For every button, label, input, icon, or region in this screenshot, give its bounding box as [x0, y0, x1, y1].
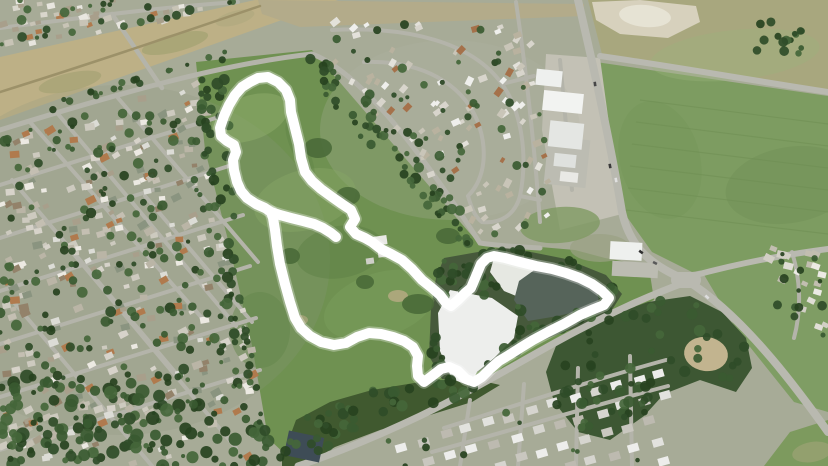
- tree: [423, 136, 428, 141]
- house: [70, 137, 79, 144]
- tree: [456, 158, 461, 163]
- house: [5, 188, 15, 195]
- tree: [9, 290, 14, 295]
- tree: [86, 345, 92, 351]
- tree: [512, 161, 521, 170]
- tree: [185, 427, 197, 439]
- tree: [15, 164, 22, 171]
- tree: [229, 292, 235, 298]
- tree: [243, 369, 252, 378]
- tree: [330, 69, 336, 75]
- tree: [198, 91, 204, 97]
- tree: [28, 128, 32, 132]
- tree: [578, 424, 586, 432]
- tree: [362, 122, 369, 129]
- tree: [77, 345, 84, 352]
- tree: [28, 447, 34, 453]
- tree: [9, 382, 21, 394]
- tree: [628, 381, 634, 387]
- tree: [119, 171, 129, 181]
- tree: [323, 441, 333, 451]
- tree: [179, 311, 184, 316]
- tree: [144, 3, 152, 11]
- tree: [440, 108, 445, 113]
- satellite-image: [0, 0, 828, 466]
- tree: [43, 378, 53, 388]
- tree: [169, 68, 173, 72]
- tree: [83, 419, 92, 428]
- tree: [349, 111, 357, 119]
- tree: [221, 298, 232, 309]
- house: [84, 123, 95, 131]
- tree: [435, 151, 445, 161]
- tree: [17, 32, 27, 42]
- tree: [596, 371, 605, 380]
- tree: [213, 275, 221, 283]
- commercial-building-3: [548, 120, 585, 149]
- tree: [206, 105, 215, 114]
- tree: [779, 46, 789, 56]
- tree: [75, 384, 84, 393]
- tree: [350, 415, 358, 423]
- tree: [756, 20, 765, 29]
- tree: [373, 26, 381, 34]
- tree: [586, 386, 592, 392]
- tree: [575, 378, 582, 385]
- tree: [131, 261, 136, 266]
- tree: [372, 125, 381, 134]
- tree: [445, 130, 450, 135]
- tree: [795, 50, 801, 56]
- warehouse-building: [610, 241, 643, 261]
- tree: [157, 204, 163, 210]
- house: [192, 163, 198, 167]
- tree: [175, 253, 183, 261]
- tree: [713, 329, 723, 339]
- tree: [200, 446, 212, 458]
- tree: [132, 111, 141, 120]
- house: [115, 125, 123, 131]
- tree: [635, 458, 640, 463]
- tree: [153, 390, 165, 402]
- tree: [220, 426, 230, 436]
- tree: [693, 354, 702, 363]
- tree: [69, 276, 78, 285]
- tree: [280, 446, 291, 457]
- tree: [396, 400, 407, 411]
- tree: [80, 404, 85, 409]
- tree: [36, 425, 43, 432]
- tree: [404, 151, 409, 156]
- tree: [433, 345, 440, 352]
- tree: [212, 434, 222, 444]
- tree: [469, 99, 477, 107]
- tree: [379, 407, 389, 417]
- tree: [541, 137, 547, 143]
- tree: [780, 274, 789, 283]
- tree: [185, 377, 190, 382]
- tree: [319, 66, 329, 76]
- tree: [160, 254, 168, 262]
- tree: [60, 265, 65, 270]
- tree: [176, 298, 181, 303]
- tree: [230, 213, 237, 220]
- tree: [130, 442, 142, 454]
- tree: [155, 371, 163, 379]
- commercial-building-5: [560, 171, 579, 183]
- tree: [116, 261, 123, 268]
- tree: [400, 20, 409, 29]
- tree: [25, 167, 30, 172]
- tree: [120, 22, 128, 30]
- house: [42, 455, 50, 462]
- house: [40, 12, 47, 18]
- tree: [576, 264, 582, 270]
- tree: [34, 269, 39, 274]
- tree: [186, 451, 198, 463]
- tree: [61, 97, 66, 102]
- tree: [0, 413, 12, 425]
- tree: [93, 147, 103, 157]
- tree: [242, 415, 250, 423]
- tree: [31, 277, 40, 286]
- tree: [172, 11, 181, 20]
- tree: [227, 0, 232, 5]
- tree: [205, 203, 213, 211]
- tree: [537, 112, 541, 116]
- tree: [182, 282, 189, 289]
- tree: [571, 448, 575, 452]
- tree: [43, 25, 51, 33]
- tree: [80, 428, 93, 441]
- tree: [188, 324, 195, 331]
- tree: [227, 279, 236, 288]
- tree: [86, 208, 96, 218]
- tree: [464, 113, 471, 120]
- tree: [172, 242, 182, 252]
- tree: [67, 117, 77, 127]
- tree: [457, 148, 465, 156]
- tree: [402, 164, 408, 170]
- tree: [133, 158, 144, 169]
- tree: [197, 431, 204, 438]
- tree: [40, 403, 48, 411]
- tree: [46, 326, 55, 335]
- tree: [29, 204, 35, 210]
- tree: [331, 97, 340, 106]
- tree: [258, 412, 263, 417]
- tree: [586, 338, 593, 345]
- park-clump-4: [402, 294, 434, 314]
- tree: [37, 385, 43, 391]
- tree: [147, 205, 154, 212]
- tree: [35, 35, 39, 39]
- tree: [441, 197, 447, 203]
- tree: [656, 330, 665, 339]
- tree: [73, 415, 78, 420]
- tree: [145, 127, 153, 135]
- tree: [7, 279, 14, 286]
- tree: [760, 36, 769, 45]
- tree: [192, 137, 200, 145]
- tree: [120, 392, 127, 399]
- tree: [598, 384, 608, 394]
- tree: [496, 50, 501, 55]
- tree: [206, 171, 211, 176]
- tree: [229, 254, 239, 264]
- tree: [797, 27, 805, 35]
- house: [154, 187, 160, 192]
- tree: [84, 167, 90, 173]
- tree: [428, 397, 439, 408]
- tree: [253, 385, 259, 391]
- tree: [218, 267, 225, 274]
- tree: [160, 403, 173, 416]
- tree: [240, 403, 248, 411]
- tree: [77, 287, 88, 298]
- tree: [313, 434, 321, 442]
- tree: [42, 33, 48, 39]
- tree: [106, 446, 119, 459]
- tree: [391, 129, 397, 135]
- tree: [585, 422, 593, 430]
- tree: [232, 368, 239, 375]
- tree: [168, 135, 179, 146]
- tree: [66, 342, 75, 351]
- tree: [458, 387, 470, 399]
- tree: [521, 85, 526, 90]
- tree: [370, 109, 377, 116]
- house: [167, 149, 175, 155]
- tree: [245, 361, 253, 369]
- tree: [90, 386, 100, 396]
- tree: [328, 83, 336, 91]
- tree: [648, 348, 655, 355]
- tree: [204, 146, 212, 154]
- house: [197, 7, 203, 12]
- tree: [143, 250, 149, 256]
- tree: [247, 379, 254, 386]
- tree: [237, 383, 243, 389]
- tree: [614, 385, 625, 396]
- tree: [242, 345, 247, 350]
- tree: [643, 392, 653, 402]
- house: [69, 226, 78, 233]
- tree: [42, 312, 49, 319]
- tree: [794, 303, 803, 312]
- tree: [68, 381, 76, 389]
- tree: [733, 358, 741, 366]
- tree: [305, 54, 315, 64]
- tree: [53, 136, 61, 144]
- tree: [118, 418, 126, 426]
- tree: [204, 416, 214, 426]
- tree: [447, 174, 455, 182]
- tree: [366, 140, 375, 149]
- tree: [314, 446, 323, 455]
- tree: [329, 428, 338, 437]
- tree: [510, 247, 516, 253]
- house: [37, 2, 43, 7]
- tree: [420, 81, 428, 89]
- tree: [140, 199, 147, 206]
- tree: [820, 333, 825, 338]
- tree: [778, 259, 783, 264]
- tree: [62, 457, 68, 463]
- tree: [125, 371, 131, 377]
- tree: [488, 281, 494, 287]
- commercial-building-2: [542, 90, 584, 114]
- tree: [53, 371, 63, 381]
- tree: [124, 128, 133, 137]
- tree: [491, 230, 498, 237]
- tree: [178, 364, 189, 375]
- tree: [623, 396, 634, 407]
- tree: [517, 420, 522, 425]
- tree: [797, 267, 804, 274]
- tree: [174, 408, 180, 414]
- tree: [87, 88, 94, 95]
- house: [10, 296, 20, 304]
- tree: [447, 204, 457, 214]
- tree: [60, 246, 69, 255]
- tree: [65, 144, 71, 150]
- tree: [99, 91, 103, 95]
- tree: [753, 46, 762, 55]
- tree: [95, 426, 102, 433]
- tree: [161, 331, 168, 338]
- tree: [2, 299, 7, 304]
- tree: [132, 210, 139, 217]
- tree: [384, 128, 389, 133]
- tree: [211, 456, 218, 463]
- tree: [160, 118, 166, 124]
- tree: [7, 214, 14, 221]
- tree: [109, 200, 116, 207]
- tree: [176, 440, 184, 448]
- tree: [203, 309, 211, 317]
- tree: [386, 438, 392, 444]
- commercial-building-4: [553, 153, 576, 168]
- tree: [34, 159, 43, 168]
- tree: [241, 332, 249, 340]
- tree: [323, 92, 328, 97]
- tree: [81, 112, 89, 120]
- tree: [498, 125, 506, 133]
- tree: [667, 356, 675, 364]
- tree: [219, 56, 226, 63]
- house: [81, 228, 89, 235]
- tree: [228, 447, 238, 457]
- tree: [452, 219, 460, 227]
- tree: [66, 97, 74, 105]
- tree: [189, 400, 198, 409]
- tree: [147, 120, 152, 125]
- tree: [185, 63, 189, 67]
- tree: [120, 363, 127, 370]
- tree: [526, 325, 532, 331]
- tree: [460, 451, 467, 458]
- tree: [164, 165, 172, 173]
- tree: [778, 37, 788, 47]
- tree: [352, 119, 358, 125]
- tree: [56, 231, 64, 239]
- house: [56, 34, 62, 39]
- tree: [333, 35, 341, 43]
- house: [79, 19, 88, 26]
- tree: [693, 302, 699, 308]
- tree: [407, 177, 415, 185]
- tree: [49, 106, 56, 113]
- tree: [220, 396, 228, 404]
- tree: [209, 175, 220, 186]
- tree: [219, 343, 225, 349]
- tree: [105, 306, 116, 317]
- tree: [133, 76, 140, 83]
- tree: [101, 192, 106, 197]
- tree: [489, 276, 494, 281]
- tree: [118, 86, 123, 91]
- tree: [369, 388, 378, 397]
- tree: [8, 441, 17, 450]
- tree: [351, 49, 356, 54]
- tree: [185, 5, 195, 15]
- tree: [206, 228, 212, 234]
- tree: [149, 251, 157, 259]
- tree: [15, 182, 24, 191]
- tree: [419, 192, 427, 200]
- tree: [477, 26, 485, 34]
- tree: [314, 419, 323, 428]
- house: [147, 315, 156, 322]
- tree: [625, 363, 636, 374]
- tree: [199, 77, 206, 84]
- warehouse-parking: [612, 261, 659, 278]
- tree: [726, 374, 733, 381]
- tree: [147, 14, 155, 22]
- house: [48, 357, 55, 362]
- tree: [118, 109, 128, 119]
- tree: [204, 247, 214, 257]
- tree: [325, 410, 332, 417]
- tree: [186, 239, 190, 243]
- tree: [104, 386, 117, 399]
- tree: [192, 388, 198, 394]
- tree: [694, 325, 706, 337]
- tree: [93, 457, 101, 465]
- tree: [456, 60, 461, 65]
- tree: [694, 345, 701, 352]
- tree: [219, 360, 223, 364]
- tree: [181, 454, 185, 458]
- tree: [320, 77, 328, 85]
- tree: [430, 184, 437, 191]
- house: [107, 405, 116, 412]
- tree: [585, 330, 592, 337]
- tree: [592, 351, 599, 358]
- tree: [47, 147, 52, 152]
- tree: [161, 449, 168, 456]
- tree: [140, 323, 146, 329]
- tree: [414, 162, 424, 172]
- tree: [77, 375, 85, 383]
- tree: [154, 158, 159, 163]
- tree: [137, 237, 142, 242]
- tree: [100, 316, 110, 326]
- tree: [773, 300, 782, 309]
- tree: [211, 411, 217, 417]
- tree: [817, 301, 827, 311]
